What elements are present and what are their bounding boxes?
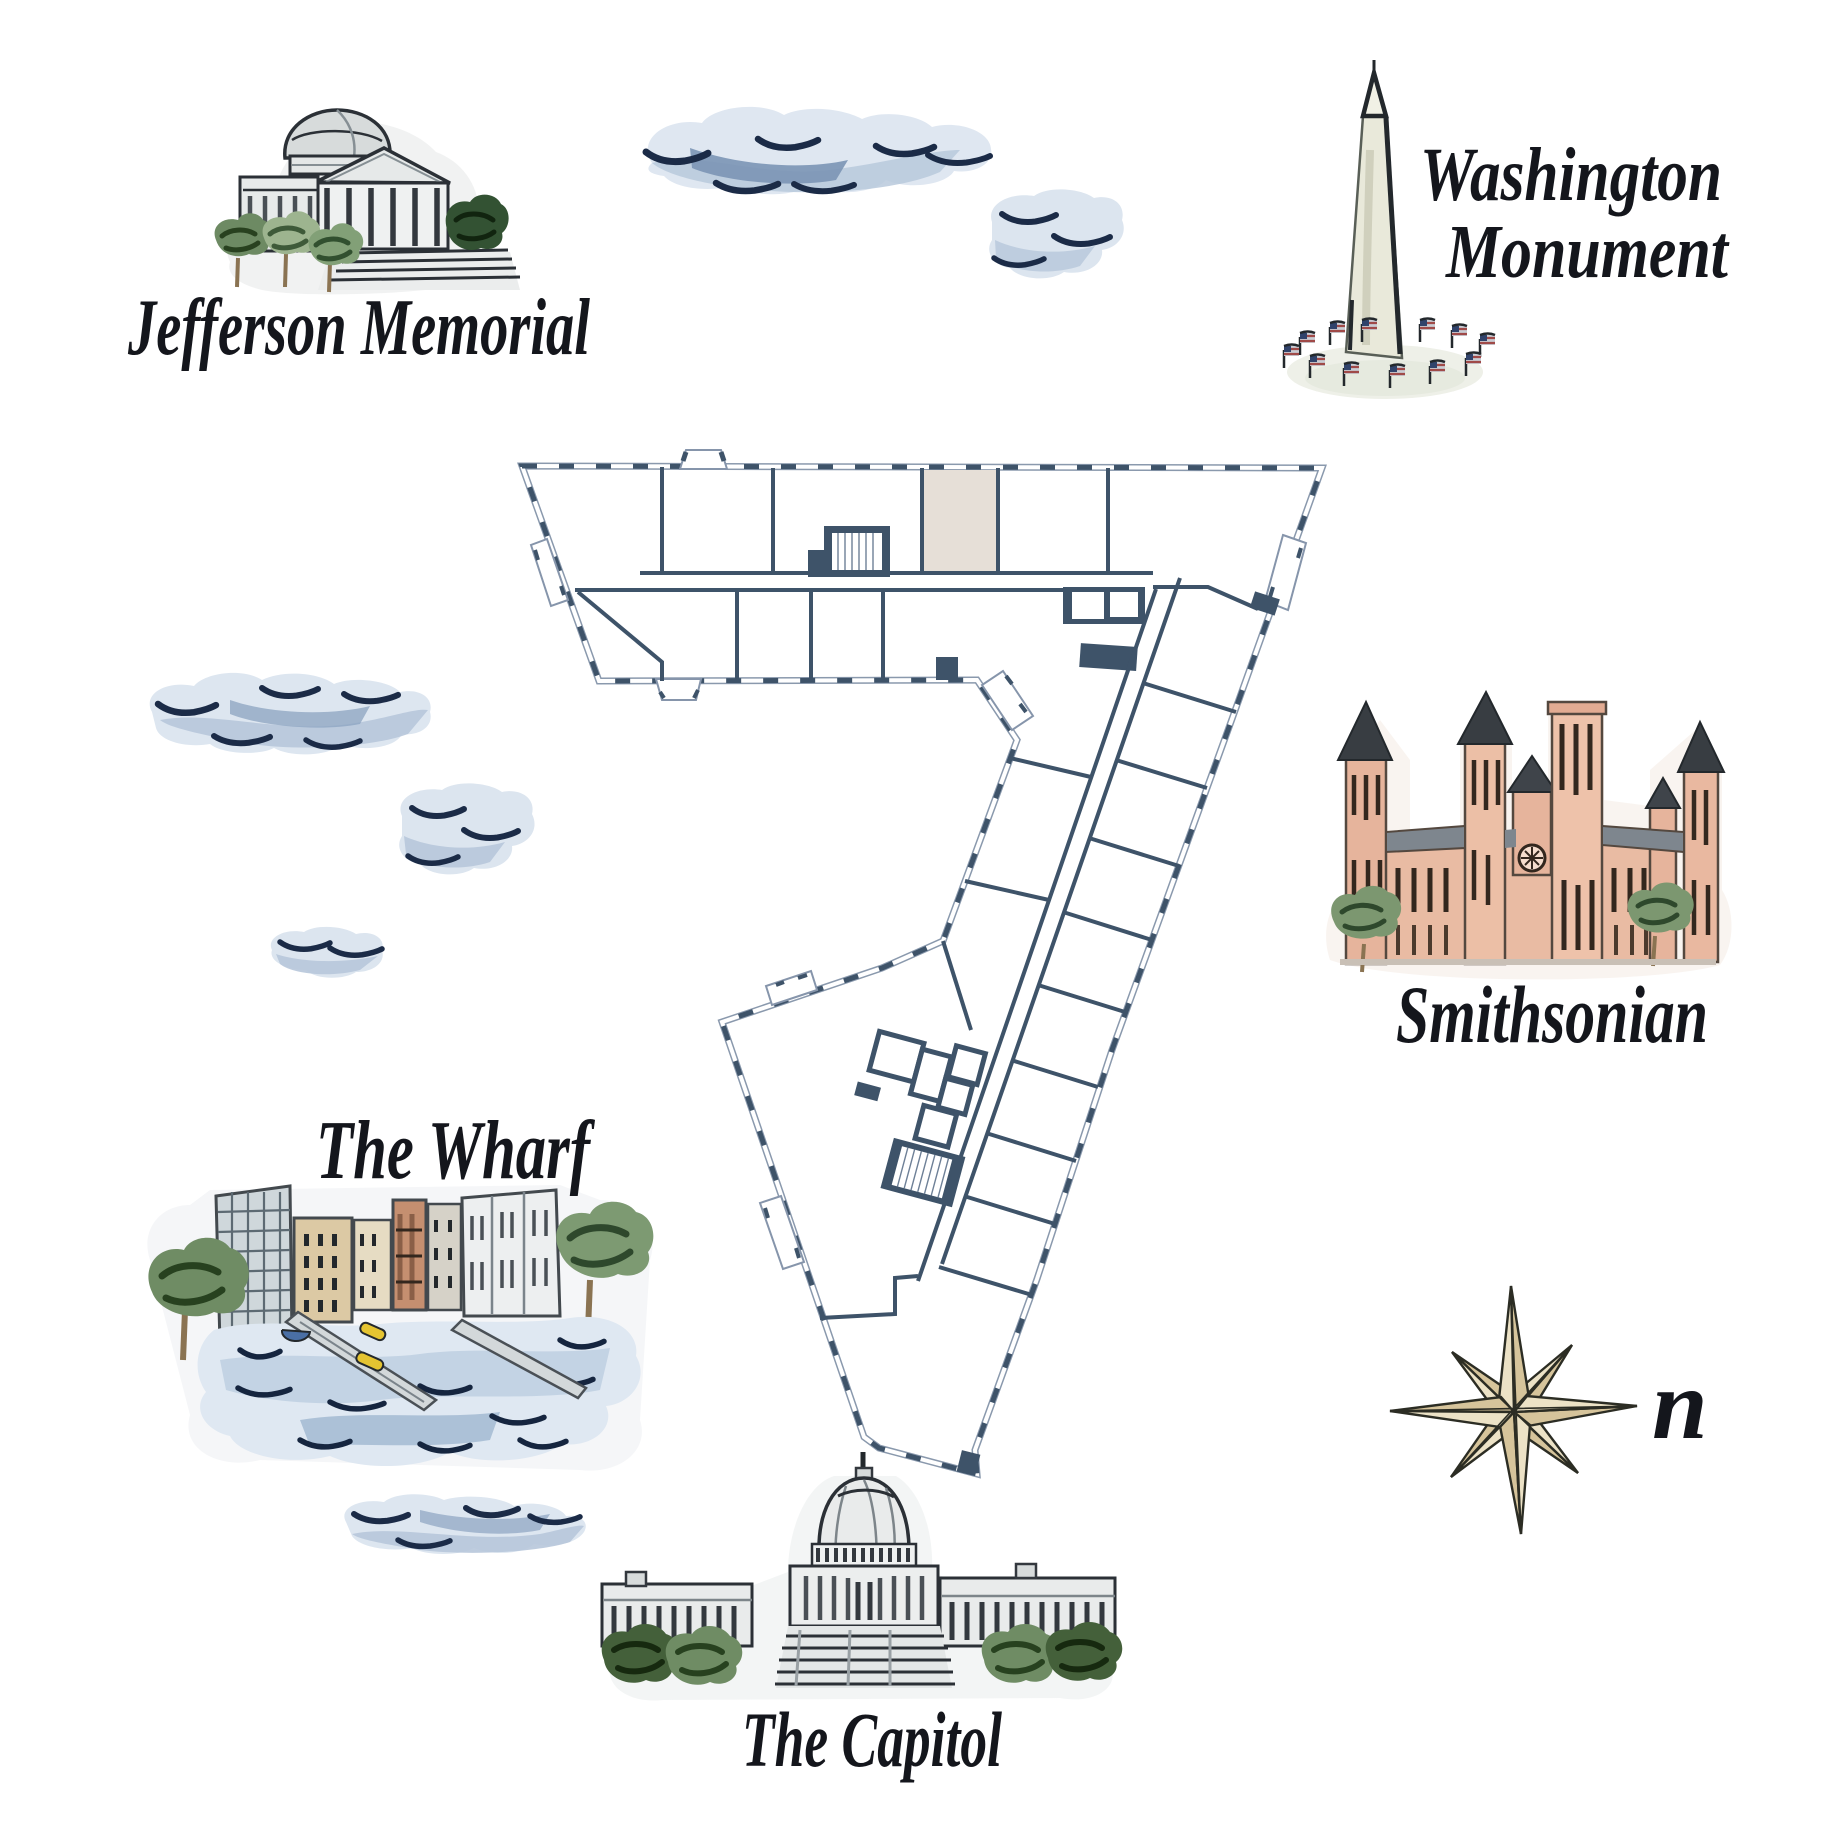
svg-text:The Wharf: The Wharf	[316, 1104, 595, 1197]
svg-text:Monument: Monument	[1445, 210, 1730, 294]
svg-text:Smithsonian: Smithsonian	[1396, 969, 1708, 1060]
svg-text:n: n	[1652, 1349, 1708, 1460]
svg-text:The Capitol: The Capitol	[742, 1696, 1002, 1783]
svg-text:Washington: Washington	[1420, 133, 1722, 217]
svg-text:Jefferson Memorial: Jefferson Memorial	[127, 284, 590, 372]
